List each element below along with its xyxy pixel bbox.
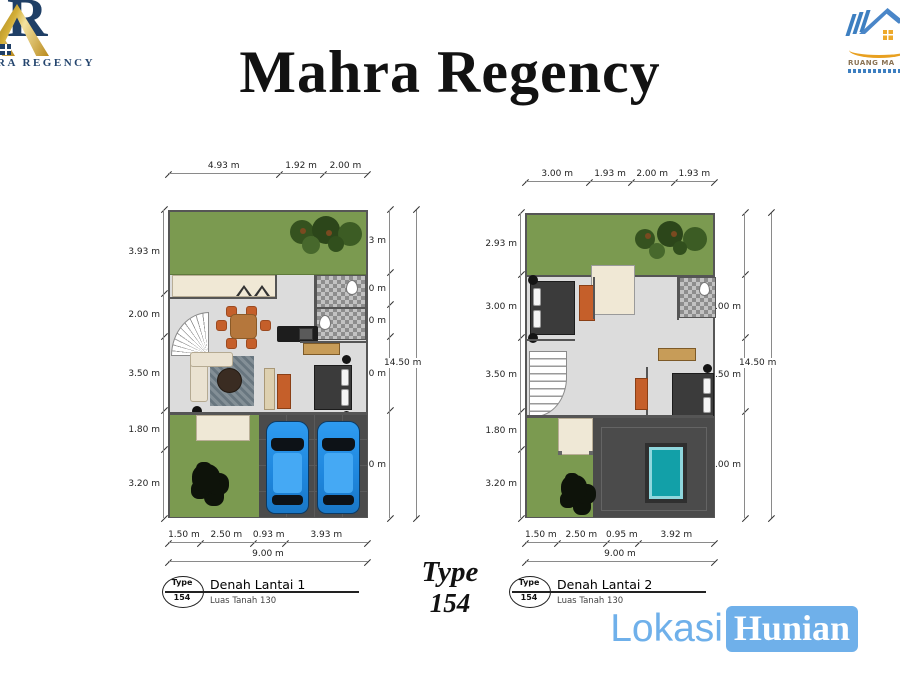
pillow [703, 378, 711, 394]
bathroom [679, 277, 716, 318]
plan2-left-dimensions: 2.93 m 3.00 m 3.50 m 1.80 m 3.20 m [477, 213, 521, 518]
terrace-post [558, 451, 562, 455]
dim-segment [719, 213, 745, 275]
plan1-overall-height-label: 14.50 m [382, 358, 423, 368]
dim-segment: 0.93 m [253, 530, 285, 543]
windshield [271, 438, 304, 451]
type-badge-word: Type [509, 578, 549, 587]
dim-segment: 4.93 m [168, 161, 279, 174]
plan-area: Luas Tanah 130 [557, 596, 623, 606]
type-badge-word: Type [162, 578, 202, 587]
car-roof [273, 453, 302, 493]
dim-segment: 2.00 m [120, 294, 164, 337]
rear-window [323, 495, 354, 505]
dim-segment: 1.93 m [674, 169, 715, 182]
dim-segment: 3.20 m [477, 450, 521, 518]
wall [316, 307, 366, 309]
dim-segment: 1.80 m [120, 411, 164, 449]
patio [196, 415, 250, 441]
dim-segment: 3.50 m [719, 338, 745, 412]
tree-icon [328, 236, 344, 252]
toilet [319, 315, 331, 330]
pillow [341, 389, 349, 406]
wall [593, 277, 595, 319]
plan-name: Denah Lantai 1 [210, 577, 305, 592]
type-badge-number: 154 [162, 593, 202, 602]
watermark-lokasihunian: Lokasi Hunian [610, 606, 858, 652]
dim-segment: 1.92 m [279, 161, 322, 174]
nightstand [528, 275, 538, 285]
tree-icon [302, 236, 320, 254]
tree-trunk [326, 230, 332, 236]
wall [677, 277, 679, 320]
type-caption-word: Type [398, 556, 502, 588]
wall [527, 339, 575, 341]
watermark-part1: Lokasi [610, 607, 723, 651]
toilet [346, 280, 358, 295]
tree-trunk [645, 233, 651, 239]
desk [658, 348, 696, 361]
dim-segment: 3.93 m [120, 210, 164, 294]
bed [314, 365, 352, 410]
car [317, 421, 360, 514]
dining-chair [246, 338, 257, 349]
wall [170, 297, 277, 299]
plan-area: Luas Tanah 130 [210, 596, 276, 606]
wardrobe [277, 374, 291, 409]
pool [645, 443, 687, 503]
sideboard [303, 343, 340, 355]
plan1-top-dimensions: 4.93 m 1.92 m 2.00 m [168, 158, 368, 174]
slide-page: R RA REGENCY RUANG MA Mahra Regency 4.93… [0, 0, 900, 675]
dining-chair [260, 320, 271, 331]
dim-segment: 1.80 m [477, 412, 521, 450]
floor-plan-2 [525, 213, 715, 518]
dim-segment: 3.50 m [477, 338, 521, 412]
plan2-top-dimensions: 3.00 m 1.93 m 2.00 m 1.93 m [525, 166, 715, 182]
wall [275, 275, 277, 299]
type-caption-number: 154 [398, 588, 502, 618]
stove [299, 328, 313, 340]
car [266, 421, 309, 514]
type-caption: Type 154 [398, 556, 502, 618]
tree-silhouette [561, 475, 587, 501]
nightstand [342, 355, 351, 364]
dim-segment: 3.20 m [120, 450, 164, 518]
staircase [171, 312, 209, 356]
bed [672, 373, 714, 416]
dining-chair [226, 338, 237, 349]
pillow [341, 369, 349, 386]
plan1-overall-width: 9.00 m [168, 547, 368, 562]
plan2-overall-height-label: 14.50 m [737, 358, 778, 368]
tree-trunk [671, 231, 677, 237]
nightstand [703, 364, 712, 373]
dim-segment: 3.00 m [525, 169, 589, 182]
pillow [533, 310, 541, 328]
dim-segment: 9.00 m [525, 549, 715, 562]
staircase [529, 351, 567, 417]
terrace-post [589, 451, 593, 455]
dining-chair [216, 320, 227, 331]
type-badge-number: 154 [509, 593, 549, 602]
rear-window [272, 495, 303, 505]
dim-segment: 3.00 m [477, 275, 521, 338]
sofa [190, 352, 233, 367]
nightstand [528, 333, 538, 343]
terrace [558, 418, 593, 455]
terrace [172, 275, 276, 297]
plan2-bottom-dimensions: 1.50 m 2.50 m 0.95 m 3.92 m [525, 528, 715, 543]
dim-segment: 2.50 m [557, 530, 606, 543]
dim-segment: 2.00 m [631, 169, 674, 182]
cabinet [264, 368, 275, 410]
tree-icon [673, 241, 687, 255]
dim-segment: 3.00 m [719, 275, 745, 338]
dim-segment: 2.93 m [477, 213, 521, 275]
windshield [322, 438, 355, 451]
tree-silhouette [192, 464, 220, 492]
watermark-part2: Hunian [726, 606, 858, 652]
car-roof [324, 453, 353, 493]
dim-segment: 3.93 m [285, 530, 368, 543]
plan2-overall-width: 9.00 m [525, 547, 715, 562]
dining-table [230, 314, 257, 339]
toilet [699, 282, 710, 296]
dim-segment: 2.50 m [200, 530, 253, 543]
plan-name: Denah Lantai 2 [557, 577, 652, 592]
floor-plan-1 [168, 210, 368, 518]
plan1-caption: Type 154 Denah Lantai 1 Luas Tanah 130 [162, 576, 367, 616]
dim-segment: 1.50 m [168, 530, 200, 543]
coffee-table [217, 368, 242, 393]
pillow [533, 288, 541, 306]
dim-segment: 1.93 m [589, 169, 630, 182]
bed [530, 281, 575, 335]
cabinet [635, 378, 648, 410]
plan1-bottom-dimensions: 1.50 m 2.50 m 0.93 m 3.93 m [168, 528, 368, 543]
plan1-left-dimensions: 3.93 m 2.00 m 3.50 m 1.80 m 3.20 m [120, 210, 164, 518]
kitchen-counter [277, 326, 318, 342]
dim-segment: 3.92 m [638, 530, 715, 543]
dim-segment: 9.00 m [168, 549, 368, 562]
pillow [703, 397, 711, 413]
dim-segment: 0.95 m [606, 530, 638, 543]
dim-segment: 2.00 m [323, 161, 368, 174]
balcony [591, 265, 635, 315]
dim-segment: 3.50 m [120, 337, 164, 412]
page-title: Mahra Regency [0, 38, 900, 107]
tree-icon [649, 243, 665, 259]
tree-trunk [300, 228, 306, 234]
dim-segment: 1.50 m [525, 530, 557, 543]
dim-segment: 5.00 m [719, 412, 745, 518]
